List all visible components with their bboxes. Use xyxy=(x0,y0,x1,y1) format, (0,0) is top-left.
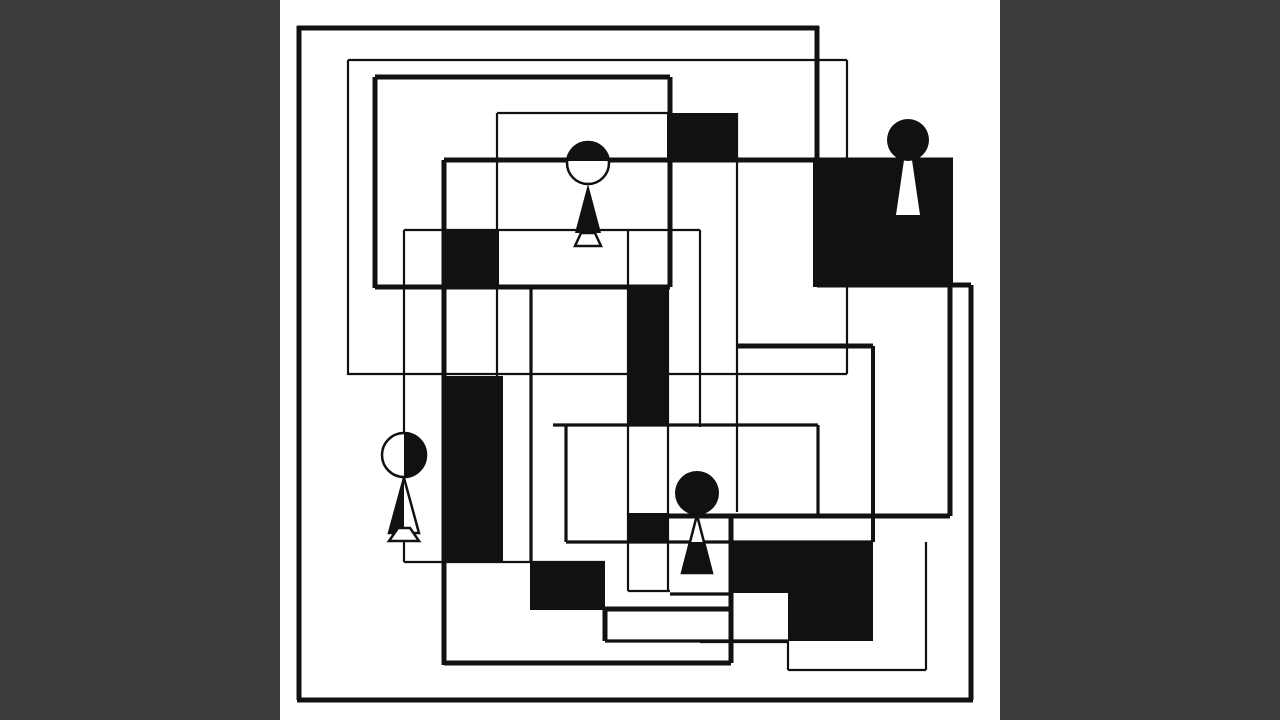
block-top-center xyxy=(667,113,737,160)
video-frame xyxy=(0,0,1280,720)
figure-bottom-head xyxy=(675,471,719,515)
block-upper-left-square xyxy=(444,230,499,287)
block-bottom-right-b xyxy=(788,593,873,641)
block-center-tall-band xyxy=(628,287,668,425)
block-bottom-left xyxy=(530,562,605,610)
block-left-tall-band xyxy=(444,376,503,563)
block-top-right-square xyxy=(813,159,953,287)
block-bottom-right-a xyxy=(731,542,873,593)
figure-top-feet xyxy=(575,233,601,246)
abstract-artwork xyxy=(0,0,1280,720)
figure-right-head xyxy=(887,119,929,161)
